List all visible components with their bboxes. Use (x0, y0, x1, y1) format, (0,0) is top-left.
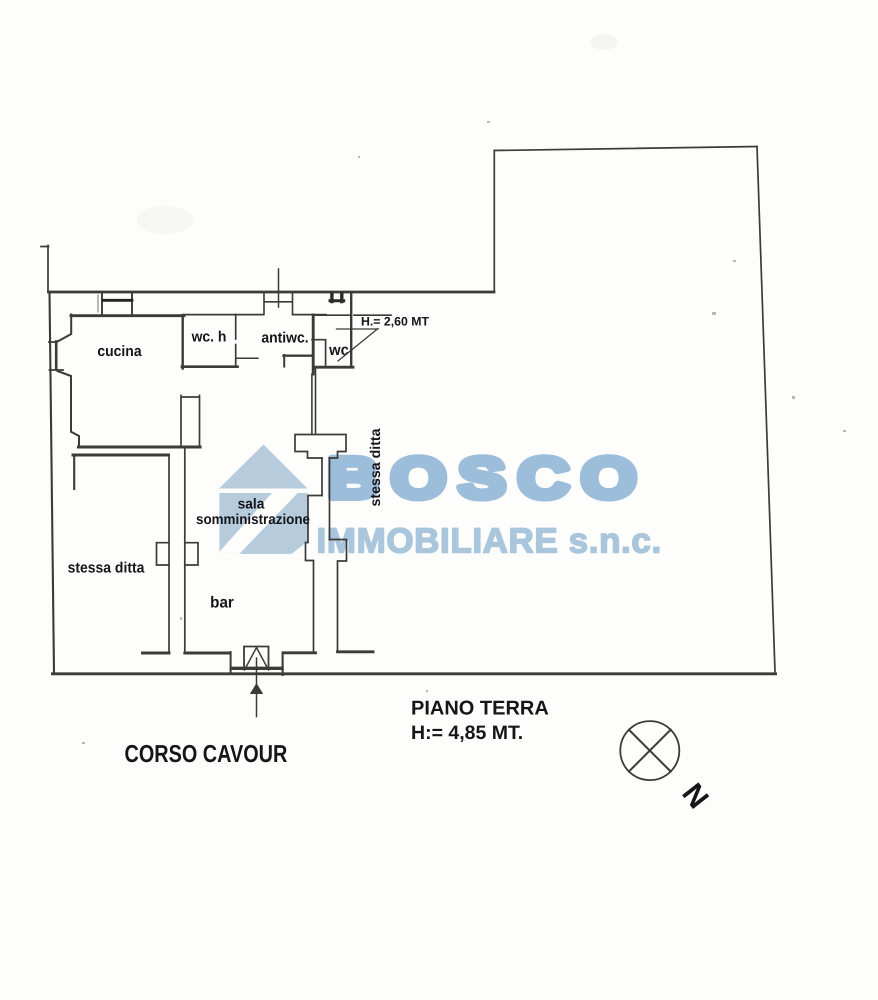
svg-text:stessa ditta: stessa ditta (68, 560, 145, 577)
svg-text:IMMOBILIARE s.n.c.: IMMOBILIARE s.n.c. (317, 522, 662, 561)
svg-text:H.= 2,60 MT: H.= 2,60 MT (361, 315, 429, 329)
svg-text:stessa ditta: stessa ditta (368, 428, 384, 506)
svg-text:cucina: cucina (97, 343, 142, 360)
svg-text:wc: wc (328, 342, 349, 359)
svg-text:CORSO CAVOUR: CORSO CAVOUR (125, 741, 288, 768)
svg-text:N: N (675, 777, 714, 814)
svg-text:H:= 4,85 MT.: H:= 4,85 MT. (411, 722, 523, 744)
svg-text:bar: bar (210, 595, 234, 612)
svg-text:PIANO TERRA: PIANO TERRA (411, 698, 549, 720)
svg-text:wc. h: wc. h (191, 329, 227, 346)
svg-text:somministrazione: somministrazione (196, 512, 310, 528)
svg-text:antiwc.: antiwc. (261, 330, 308, 347)
svg-text:sala: sala (238, 497, 266, 513)
